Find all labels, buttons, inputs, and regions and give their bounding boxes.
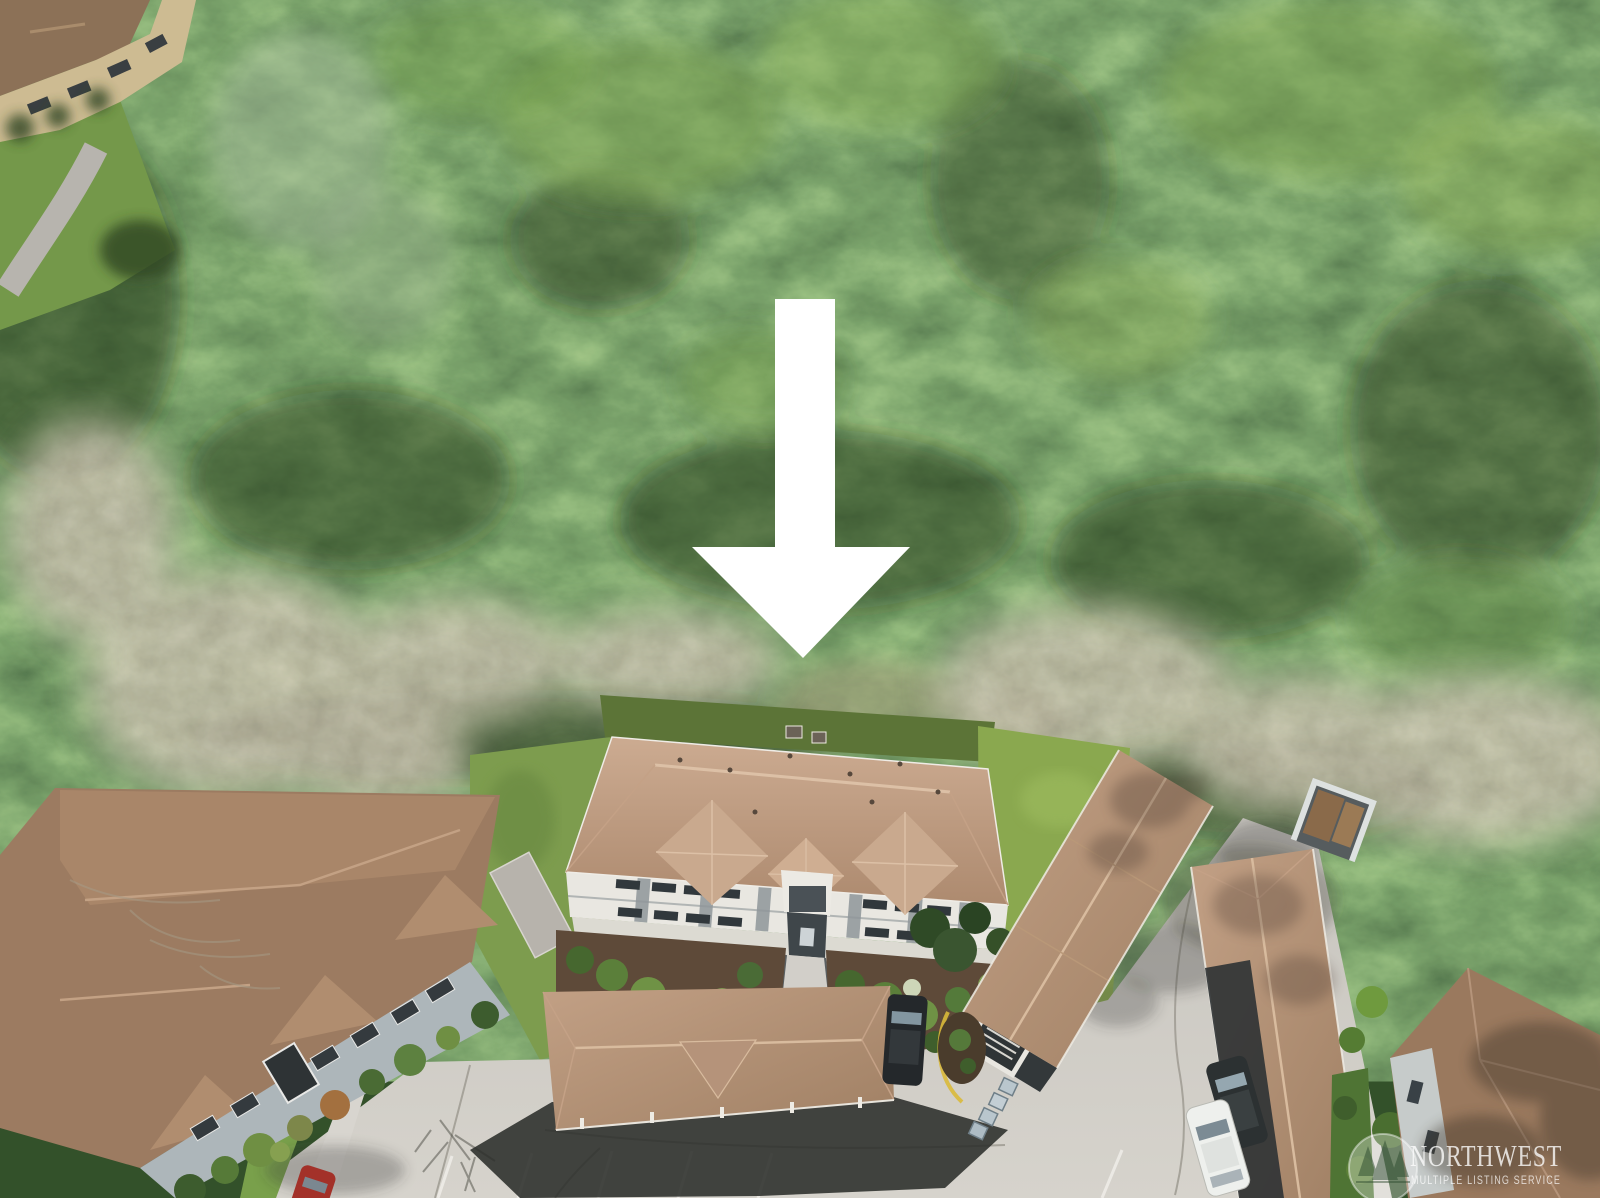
black-suv bbox=[882, 994, 928, 1087]
watermark-line1: NORTHWEST bbox=[1410, 1138, 1562, 1173]
nwmls-logo-icon bbox=[1349, 1134, 1417, 1198]
watermark-line2: MULTIPLE LISTING SERVICE bbox=[1411, 1173, 1561, 1187]
aerial-photo: NORTHWEST MULTIPLE LISTING SERVICE bbox=[0, 0, 1600, 1198]
entry-portico bbox=[781, 870, 833, 958]
aerial-scene: NORTHWEST MULTIPLE LISTING SERVICE bbox=[0, 0, 1600, 1198]
